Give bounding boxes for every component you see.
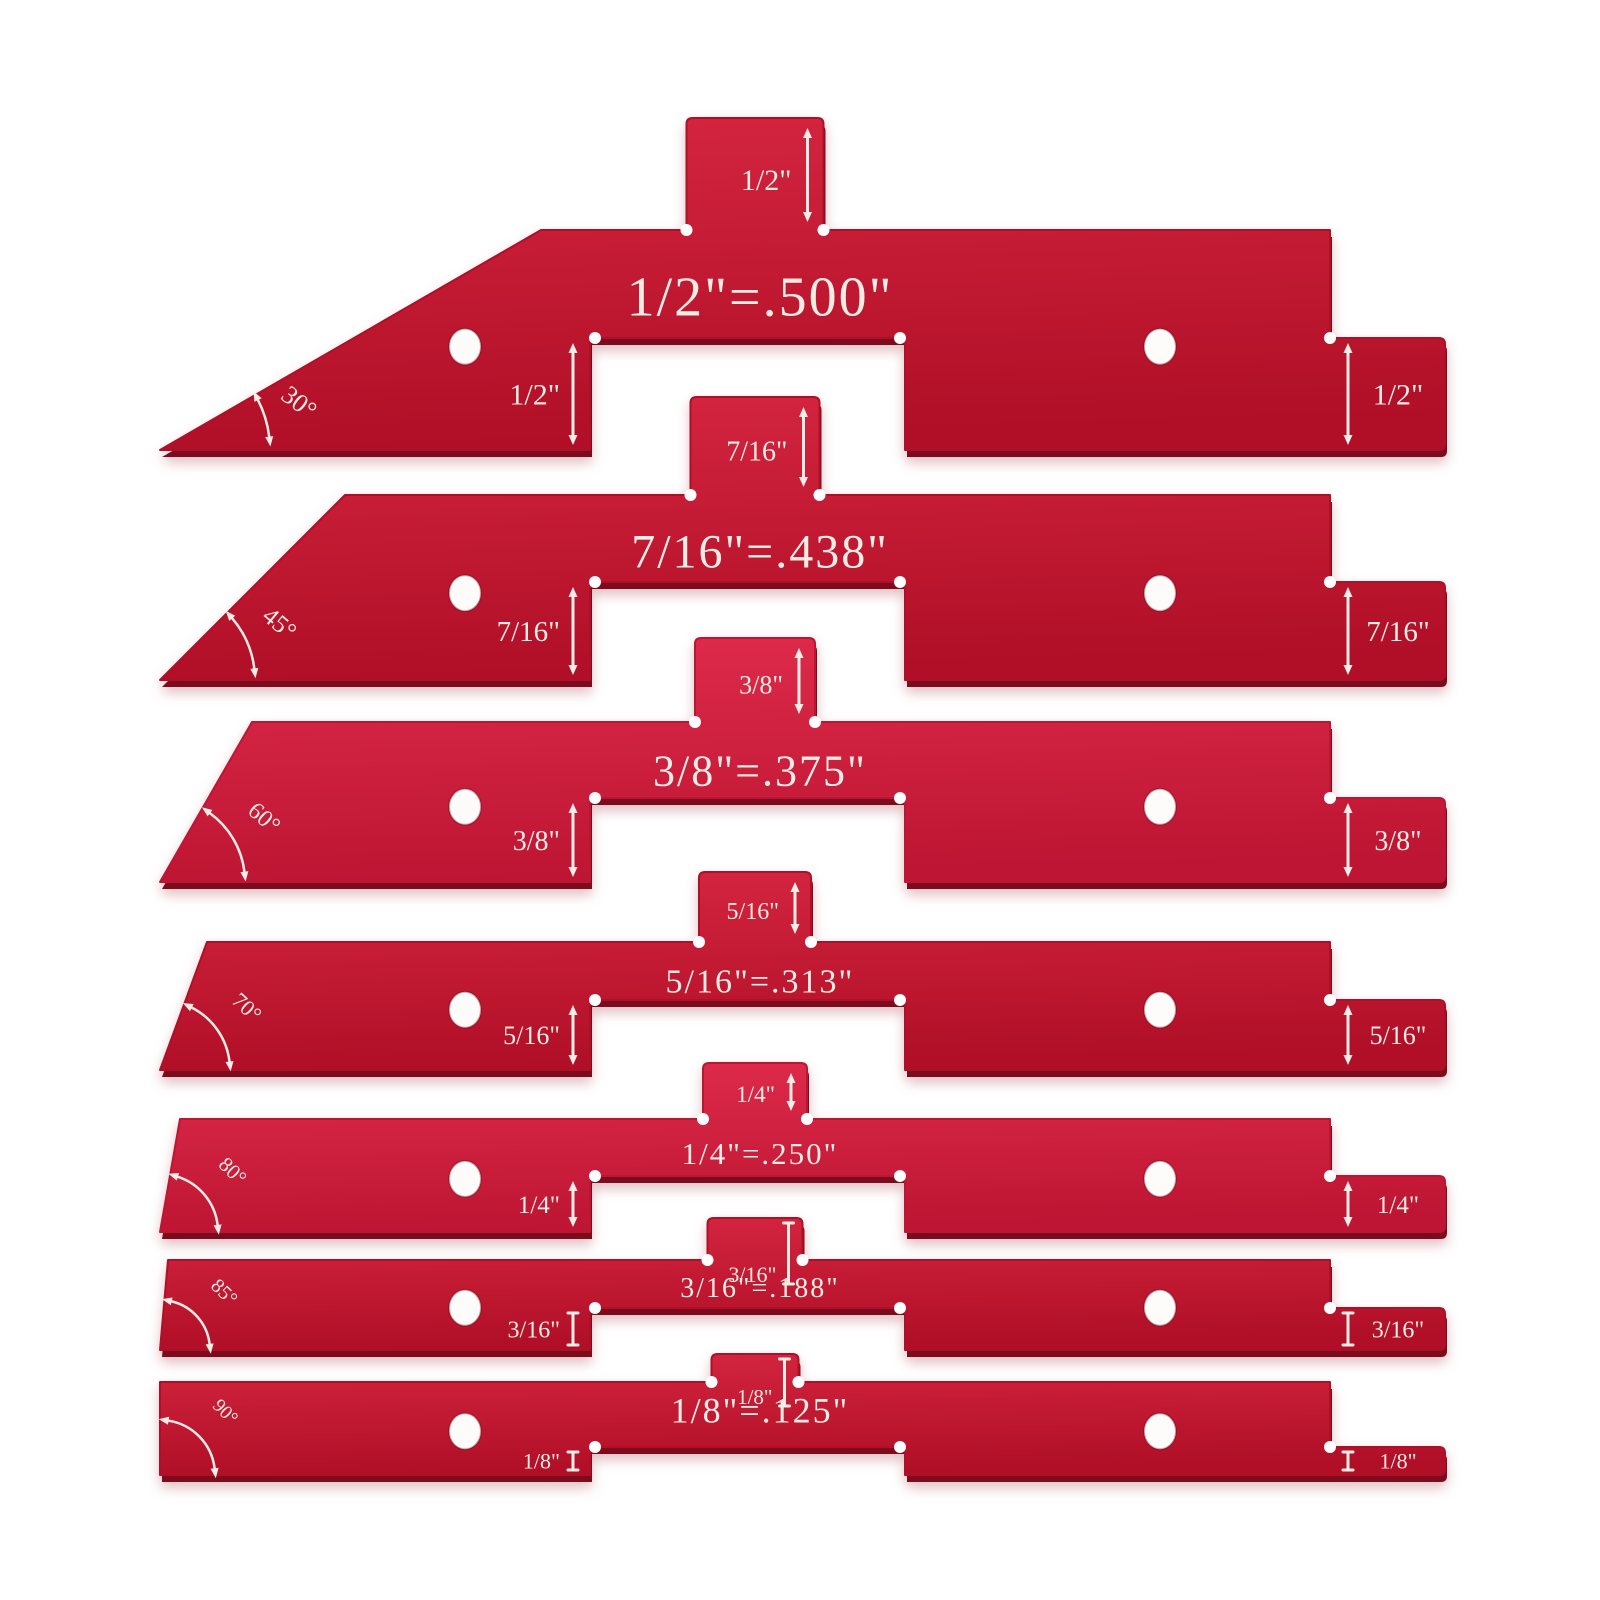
left-step-size-label: 7/16" bbox=[497, 616, 560, 648]
left-step-size-label: 1/2" bbox=[509, 379, 560, 412]
relief-notch bbox=[1324, 1302, 1336, 1314]
relief-notch bbox=[797, 1254, 809, 1266]
relief-notch bbox=[1324, 1441, 1336, 1453]
relief-notch bbox=[589, 792, 601, 804]
relief-notch bbox=[805, 936, 817, 948]
relief-notch bbox=[894, 576, 906, 588]
relief-notch bbox=[814, 489, 826, 501]
relief-notch bbox=[894, 1441, 906, 1453]
relief-notch bbox=[1324, 1170, 1336, 1182]
bolt-hole bbox=[1144, 992, 1176, 1028]
tab-size-label: 7/16" bbox=[726, 437, 787, 468]
relief-notch bbox=[801, 1113, 813, 1125]
relief-notch bbox=[1324, 332, 1336, 344]
scene-svg: 1/2"=.500"1/2"1/2"1/2"30°7/16"=.438"7/16… bbox=[0, 0, 1600, 1600]
bolt-hole bbox=[1144, 789, 1176, 825]
left-step-size-label: 1/4" bbox=[518, 1192, 560, 1219]
relief-notch bbox=[818, 224, 830, 236]
bolt-hole bbox=[449, 1290, 481, 1326]
relief-notch bbox=[589, 994, 601, 1006]
bolt-hole bbox=[449, 575, 481, 611]
tab-size-label: 3/8" bbox=[739, 670, 783, 699]
center-spec-text: 1/2"=.500" bbox=[627, 267, 894, 329]
relief-notch bbox=[589, 332, 601, 344]
bolt-hole bbox=[1144, 1161, 1176, 1197]
center-spec-text: 3/8"=.375" bbox=[653, 746, 867, 795]
left-step-size-label: 1/8" bbox=[523, 1449, 560, 1474]
center-spec-text: 7/16"=.438" bbox=[631, 525, 889, 578]
relief-notch bbox=[1324, 576, 1336, 588]
relief-notch bbox=[1324, 994, 1336, 1006]
relief-notch bbox=[693, 936, 705, 948]
left-step-size-label: 3/16" bbox=[508, 1317, 560, 1343]
center-spec-text: 5/16"=.313" bbox=[666, 963, 855, 1000]
bolt-hole bbox=[1144, 1290, 1176, 1326]
relief-notch bbox=[689, 716, 701, 728]
right-step-size-label: 5/16" bbox=[1370, 1021, 1427, 1050]
relief-notch bbox=[1324, 792, 1336, 804]
bolt-hole bbox=[449, 329, 481, 365]
relief-notch bbox=[702, 1254, 714, 1266]
bolt-hole bbox=[1144, 329, 1176, 365]
bolt-hole bbox=[449, 992, 481, 1028]
relief-notch bbox=[589, 1170, 601, 1182]
tab-size-label: 1/8" bbox=[737, 1385, 772, 1409]
tab-size-label: 1/4" bbox=[736, 1082, 775, 1107]
left-step-size-label: 5/16" bbox=[503, 1021, 560, 1050]
relief-notch bbox=[706, 1376, 718, 1388]
relief-notch bbox=[697, 1113, 709, 1125]
bolt-hole bbox=[1144, 575, 1176, 611]
tab-size-label: 5/16" bbox=[727, 899, 779, 925]
relief-notch bbox=[589, 1441, 601, 1453]
right-step-size-label: 3/8" bbox=[1374, 826, 1421, 857]
setup-bars-product-photo: 1/2"=.500"1/2"1/2"1/2"30°7/16"=.438"7/16… bbox=[0, 0, 1600, 1600]
setup-bar: 1/4"=.250"1/4"1/4"1/4"80° bbox=[160, 1063, 1447, 1239]
relief-notch bbox=[793, 1376, 805, 1388]
relief-notch bbox=[681, 224, 693, 236]
center-spec-text: 1/4"=.250" bbox=[682, 1136, 839, 1171]
tab-size-label: 3/16" bbox=[728, 1262, 776, 1287]
relief-notch bbox=[894, 994, 906, 1006]
relief-notch bbox=[589, 576, 601, 588]
left-step-size-label: 3/8" bbox=[513, 826, 560, 857]
right-step-size-label: 1/4" bbox=[1377, 1192, 1419, 1219]
relief-notch bbox=[894, 1302, 906, 1314]
bolt-hole bbox=[449, 789, 481, 825]
relief-notch bbox=[589, 1302, 601, 1314]
relief-notch bbox=[894, 332, 906, 344]
relief-notch bbox=[809, 716, 821, 728]
setup-bar: 5/16"=.313"5/16"5/16"5/16"70° bbox=[160, 872, 1447, 1077]
tab-size-label: 1/2" bbox=[741, 164, 792, 197]
setup-bar: 1/8"=.125"1/8"1/8"1/8"90° bbox=[159, 1354, 1447, 1482]
relief-notch bbox=[894, 1170, 906, 1182]
right-step-size-label: 7/16" bbox=[1366, 616, 1429, 648]
bolt-hole bbox=[449, 1161, 481, 1197]
right-step-size-label: 1/8" bbox=[1379, 1449, 1416, 1474]
bolt-hole bbox=[449, 1413, 481, 1449]
relief-notch bbox=[685, 489, 697, 501]
bolt-hole bbox=[1144, 1413, 1176, 1449]
relief-notch bbox=[894, 792, 906, 804]
right-step-size-label: 3/16" bbox=[1372, 1317, 1424, 1343]
right-step-size-label: 1/2" bbox=[1373, 379, 1424, 412]
